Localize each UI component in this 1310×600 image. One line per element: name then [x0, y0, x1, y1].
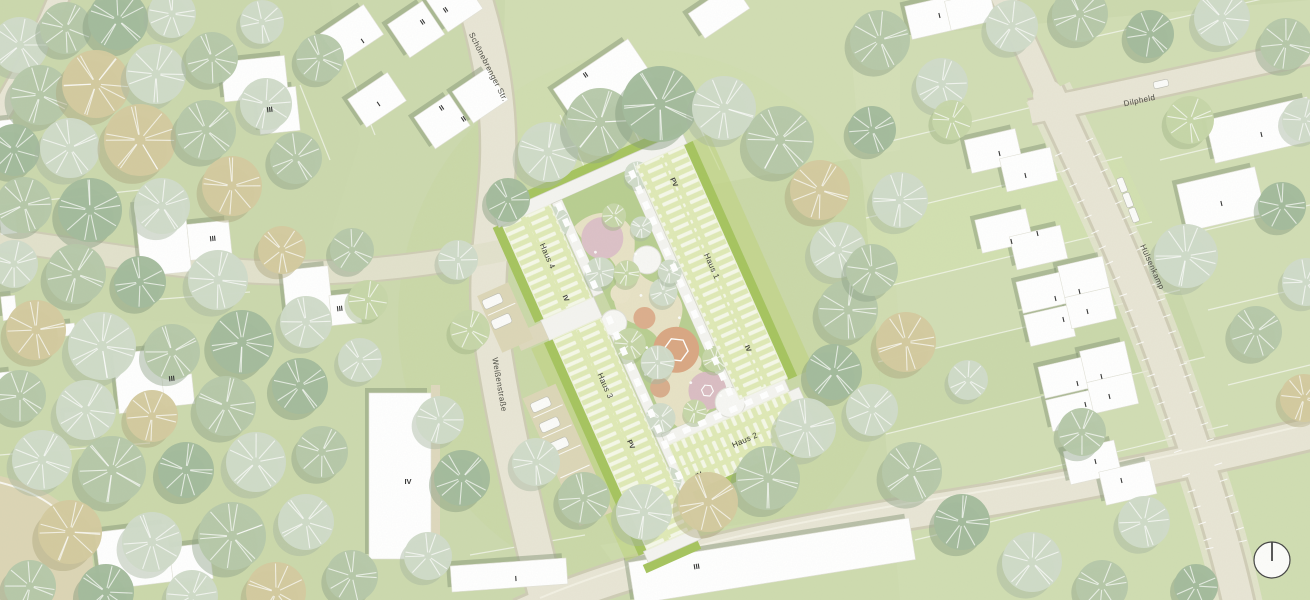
site-plan-page: Haus 4 IV PV Haus 1 IV Haus 3 PV IV Haus…: [0, 0, 1310, 600]
site-plan-map: Haus 4 IV PV Haus 1 IV Haus 3 PV IV Haus…: [0, 0, 1310, 600]
paper-texture: [0, 0, 1310, 600]
